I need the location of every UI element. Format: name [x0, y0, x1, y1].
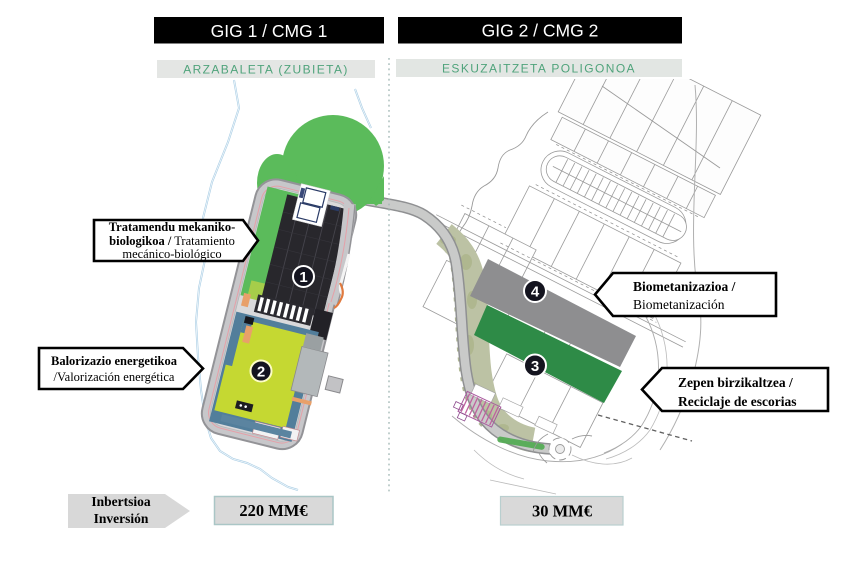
svg-text:30 MM€: 30 MM€: [532, 502, 593, 521]
svg-text:Biometanizazioa /: Biometanizazioa /: [633, 279, 736, 294]
svg-text:Tratamendu mekaniko-: Tratamendu mekaniko-: [109, 220, 236, 234]
svg-text:Reciclaje de escorias: Reciclaje de escorias: [678, 394, 796, 409]
svg-text:2: 2: [257, 364, 265, 381]
svg-text:GIG 2 / CMG 2: GIG 2 / CMG 2: [482, 21, 599, 41]
svg-text:GIG 1 / CMG 1: GIG 1 / CMG 1: [211, 21, 328, 41]
svg-text:biologikoa / Tratamiento: biologikoa / Tratamiento: [109, 234, 235, 248]
svg-text:/Valorización energética: /Valorización energética: [54, 370, 175, 384]
svg-text:220 MM€: 220 MM€: [239, 501, 308, 520]
svg-text:Inbertsioa: Inbertsioa: [91, 494, 151, 509]
svg-text:mecánico-biológico: mecánico-biológico: [122, 247, 221, 261]
svg-text:1: 1: [299, 269, 307, 286]
svg-text:4: 4: [531, 284, 540, 301]
svg-text:Biometanización: Biometanización: [633, 297, 725, 312]
svg-text:Balorizazio energetikoa: Balorizazio energetikoa: [51, 354, 178, 368]
svg-text:Inversión: Inversión: [94, 511, 149, 526]
svg-text:ESKUZAITZETA POLIGONOA: ESKUZAITZETA POLIGONOA: [442, 62, 636, 76]
svg-text:3: 3: [531, 358, 539, 375]
svg-text:ARZABALETA (ZUBIETA): ARZABALETA (ZUBIETA): [183, 63, 349, 77]
svg-text:Zepen birzikaltzea /: Zepen birzikaltzea /: [678, 375, 793, 390]
